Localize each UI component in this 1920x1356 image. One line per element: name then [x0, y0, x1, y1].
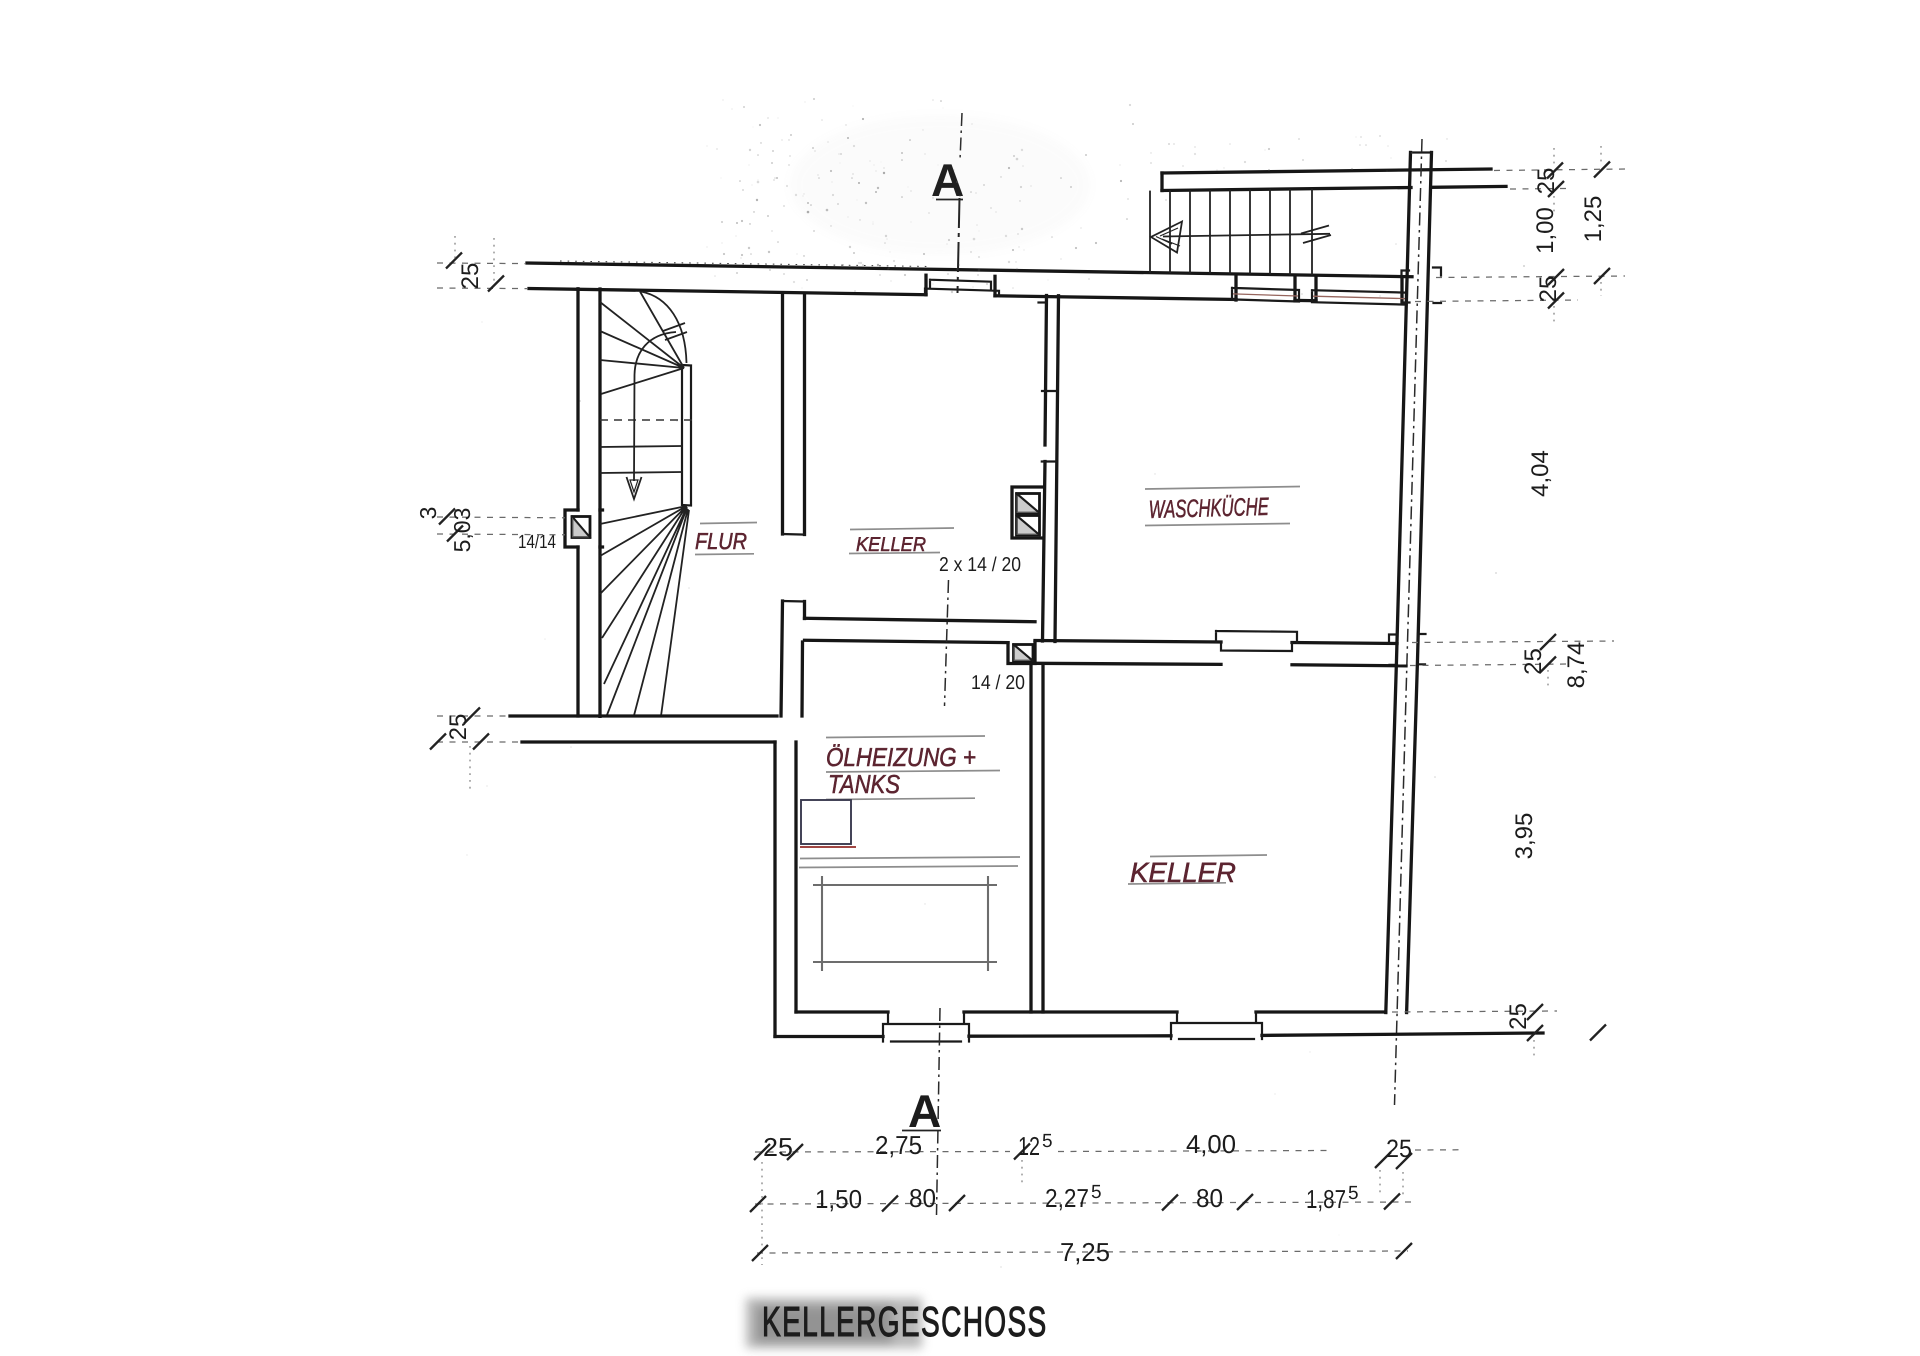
svg-text:5: 5	[1348, 1183, 1359, 1204]
svg-text:3,95: 3,95	[1511, 813, 1538, 860]
svg-text:3: 3	[415, 507, 441, 520]
svg-text:1,87: 1,87	[1306, 1184, 1346, 1214]
svg-text:TANKS: TANKS	[828, 769, 901, 799]
svg-text:14 / 20: 14 / 20	[971, 672, 1025, 694]
svg-text:8,74: 8,74	[1563, 642, 1590, 689]
svg-text:25: 25	[1533, 168, 1560, 195]
svg-text:WASCHKÜCHE: WASCHKÜCHE	[1148, 493, 1269, 524]
svg-text:1,25: 1,25	[1580, 196, 1607, 243]
svg-text:2 x 14 / 20: 2 x 14 / 20	[939, 554, 1021, 576]
svg-text:25: 25	[763, 1132, 793, 1162]
svg-text:5: 5	[1091, 1182, 1102, 1203]
svg-text:KELLERGESCHOSS: KELLERGESCHOSS	[762, 1298, 1048, 1345]
svg-text:7,25: 7,25	[1060, 1237, 1110, 1267]
svg-text:5,03: 5,03	[449, 508, 475, 553]
svg-text:4,04: 4,04	[1527, 450, 1554, 497]
svg-text:1,00: 1,00	[1532, 207, 1559, 254]
svg-text:25: 25	[1535, 276, 1562, 303]
svg-text:2,75: 2,75	[875, 1130, 922, 1160]
svg-text:FLUR: FLUR	[695, 528, 747, 554]
svg-text:1,50: 1,50	[815, 1184, 862, 1214]
svg-text:2,27: 2,27	[1045, 1183, 1089, 1213]
svg-text:12: 12	[1018, 1131, 1040, 1161]
svg-text:4,00: 4,00	[1186, 1129, 1236, 1159]
svg-text:5: 5	[1042, 1131, 1053, 1152]
svg-text:25: 25	[1520, 648, 1547, 675]
svg-text:80: 80	[909, 1183, 936, 1213]
svg-text:25: 25	[1386, 1135, 1412, 1163]
svg-text:25: 25	[1505, 1003, 1532, 1030]
svg-text:ÖLHEIZUNG +: ÖLHEIZUNG +	[826, 742, 976, 772]
svg-text:25: 25	[445, 714, 472, 741]
svg-text:80: 80	[1196, 1183, 1223, 1213]
svg-text:25: 25	[457, 263, 484, 290]
